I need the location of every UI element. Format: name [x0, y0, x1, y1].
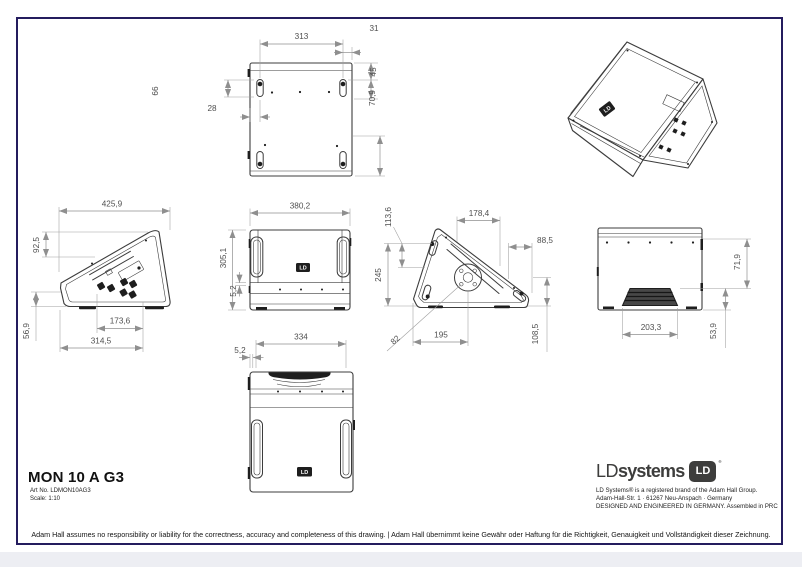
- view-front: LD 380,2 305,1 5,2: [219, 202, 351, 311]
- dim-sideright-angle: 82: [389, 333, 402, 346]
- dim-sideleft-lower: 56,9: [22, 323, 31, 339]
- scale-label: Scale: 1:10: [30, 496, 124, 502]
- ld-badge-front: LD: [296, 263, 310, 272]
- view-side-right: 178,4 88,5 113,6 245 108,5 195 82: [374, 207, 553, 352]
- dim-sideleft-upper: 92,5: [32, 237, 41, 253]
- svg-text:LD: LD: [299, 266, 306, 272]
- dim-sideleft-panel: 173,6: [110, 317, 131, 326]
- dim-sideright-height: 245: [374, 268, 383, 282]
- dim-top-depth: 70,9: [368, 90, 377, 106]
- view-top: 313 31 66 28 45 70,9: [151, 24, 385, 176]
- dim-back-step-h: 71,9: [733, 254, 742, 270]
- registered-mark: ®: [719, 459, 722, 464]
- back-step: [623, 289, 678, 306]
- footer-disclaimer: Adam Hall assumes no responsibility or l…: [20, 530, 782, 539]
- page-title: MON 10 A G3: [28, 469, 124, 486]
- view-back: 71,9 53,9 203,3: [597, 228, 751, 348]
- dim-sideright-rear: 88,5: [537, 236, 553, 245]
- view-side-left: 425,9 92,5 56,9 173,6 314,5: [22, 200, 170, 353]
- view-isometric: LD: [568, 42, 717, 177]
- view-bottom: LD 334 5,2: [234, 333, 355, 493]
- dim-top-slot-inset: 28: [207, 104, 217, 113]
- dim-sideright-top: 178,4: [469, 209, 490, 218]
- dim-sideright-pole-x: 195: [434, 331, 448, 340]
- dim-back-step-w: 203,3: [641, 323, 662, 332]
- dim-bottom-lip: 5,2: [234, 346, 246, 355]
- dim-front-foot: 5,2: [229, 285, 238, 297]
- title-block: MON 10 A G3 Art No. LDMON10AG3 Scale: 1:…: [28, 469, 124, 502]
- dim-sideleft-base: 314,5: [91, 337, 112, 346]
- dim-top-slot-pitch: 66: [151, 86, 160, 96]
- wordmark-systems: systems: [618, 461, 684, 482]
- dim-sideleft-overall: 425,9: [102, 200, 123, 209]
- dim-top-offset: 31: [369, 24, 379, 33]
- dim-sideright-pole-y: 108,5: [531, 323, 540, 344]
- svg-text:LD: LD: [301, 470, 308, 476]
- dim-front-height: 305,1: [219, 247, 228, 268]
- brand-badge-logo: LD ®: [689, 461, 716, 482]
- dim-sideright-drop: 113,6: [384, 207, 393, 227]
- brand-wordmark: LDsystems LD ®: [596, 459, 791, 483]
- dim-top-width: 313: [295, 32, 309, 41]
- brand-tagline-3: DESIGNED AND ENGINEERED IN GERMANY. Asse…: [596, 503, 791, 511]
- dim-front-width: 380,2: [290, 202, 311, 211]
- brand-tagline-1: LD Systems® is a registered brand of the…: [596, 487, 791, 495]
- wordmark-ld: LD: [596, 461, 618, 482]
- dim-bottom-width: 334: [294, 333, 308, 342]
- brand-block: LDsystems LD ® LD Systems® is a register…: [596, 459, 791, 512]
- brand-tagline-2: Adam-Hall-Str. 1 · 61267 Neu-Anspach · G…: [596, 495, 791, 503]
- dim-top-edge: 45: [369, 67, 378, 77]
- art-no: Art No. LDMON10AG3: [30, 488, 124, 494]
- ld-badge-bottom: LD: [297, 467, 312, 477]
- dim-back-step-d: 53,9: [709, 323, 718, 339]
